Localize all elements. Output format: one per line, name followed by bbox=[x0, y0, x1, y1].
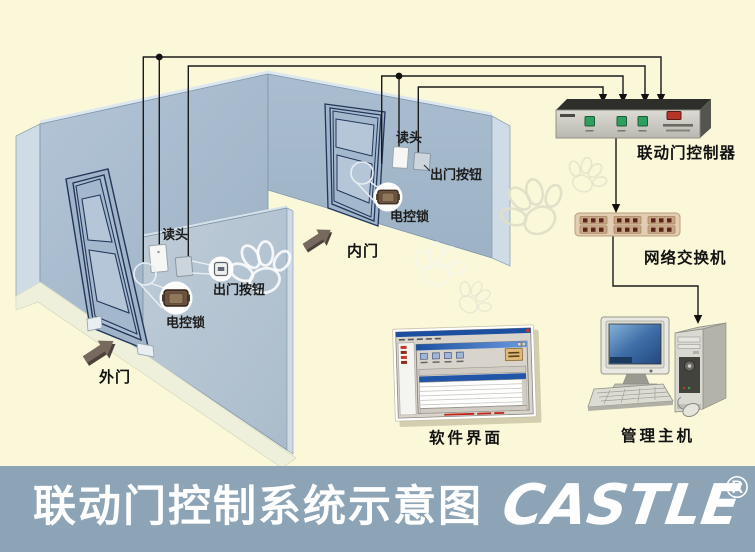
monitor-stand bbox=[623, 374, 649, 384]
footer-bar: 联动门控制系统示意图 CASTLE ® bbox=[0, 466, 755, 552]
inner-door-label: 内门 bbox=[347, 242, 379, 260]
controller-front-text bbox=[663, 124, 693, 127]
dialog-min-button bbox=[518, 343, 522, 347]
controller-brand-mark bbox=[560, 114, 575, 117]
inner-exit-button-box bbox=[413, 152, 430, 170]
brand-logo: CASTLE ® bbox=[498, 471, 752, 538]
controller-power-lamp bbox=[667, 112, 681, 120]
diagram-canvas: 联动门控制器 网络交换机 bbox=[0, 0, 755, 552]
outer-reader-led bbox=[157, 251, 159, 253]
left-wall-end-cap bbox=[16, 124, 40, 298]
outer-lock-icon bbox=[162, 290, 190, 306]
software-label: 软件界面 bbox=[429, 428, 503, 447]
monitor-power-button bbox=[650, 370, 653, 373]
app-tree-panel bbox=[398, 343, 416, 415]
dialog-close-button bbox=[522, 342, 526, 346]
outer-exit-button-label: 出门按钮 bbox=[213, 282, 265, 298]
outer-door-label: 外门 bbox=[98, 368, 131, 386]
inner-reader-label: 读头 bbox=[396, 130, 422, 146]
dialog-action-button bbox=[505, 348, 522, 361]
inner-card-reader bbox=[392, 147, 408, 169]
screen-taskbar bbox=[610, 357, 632, 363]
controller-top bbox=[556, 99, 711, 110]
table-scrollbar bbox=[522, 379, 527, 405]
footer-title: 联动门控制系统示意图 bbox=[33, 482, 483, 532]
outer-exit-button-box bbox=[175, 256, 193, 276]
app-close-button bbox=[526, 329, 529, 332]
controller-label: 联动门控制器 bbox=[637, 143, 736, 162]
junction-dot bbox=[156, 54, 163, 61]
partition-end-cap bbox=[287, 208, 293, 454]
outer-reader-label: 读头 bbox=[162, 227, 188, 243]
controller-front-text2 bbox=[666, 130, 690, 132]
table-body bbox=[419, 379, 527, 408]
system-diagram: 联动门控制器 网络交换机 bbox=[0, 0, 755, 552]
registered-mark: ® bbox=[722, 471, 752, 506]
outer-lock-label: 电控锁 bbox=[166, 315, 205, 331]
tower-led-red bbox=[683, 387, 685, 389]
inner-lock-icon bbox=[376, 190, 400, 204]
software-screenshot bbox=[393, 325, 542, 428]
tower-drive-bay2 bbox=[678, 345, 700, 349]
switch-label: 网络交换机 bbox=[644, 248, 727, 267]
inner-lock-label: 电控锁 bbox=[390, 209, 429, 225]
junction-dot bbox=[396, 73, 403, 80]
outer-card-reader bbox=[149, 244, 168, 272]
tower-drive-bay bbox=[678, 337, 700, 342]
tower-button bbox=[693, 351, 699, 354]
brand-logo-text: CASTLE bbox=[498, 473, 744, 538]
tower-led-green bbox=[688, 387, 690, 389]
tower-fan-hub bbox=[688, 364, 692, 368]
right-wall-end-cap bbox=[492, 116, 510, 266]
tower-side bbox=[703, 323, 726, 409]
inner-exit-button-label: 出门按钮 bbox=[430, 167, 482, 183]
host-label: 管理主机 bbox=[621, 426, 695, 445]
exit-button-icon-plate bbox=[218, 267, 225, 271]
